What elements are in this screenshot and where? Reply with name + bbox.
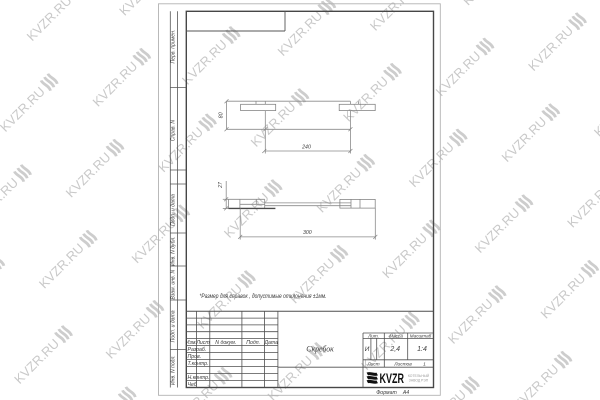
svg-text:Формат: Формат <box>376 390 397 396</box>
svg-text:ЗАВОД РЭП: ЗАВОД РЭП <box>409 379 429 383</box>
svg-text:KVZR.RU: KVZR.RU <box>511 361 562 400</box>
svg-text:Подп. и дата: Подп. и дата <box>170 310 176 342</box>
svg-text:Масса: Масса <box>389 334 403 339</box>
svg-text:Дата: Дата <box>263 340 278 346</box>
svg-text:KVZR.RU: KVZR.RU <box>274 8 325 59</box>
svg-text:KVZR.RU: KVZR.RU <box>116 0 167 18</box>
svg-text:KVZR.RU: KVZR.RU <box>36 240 87 291</box>
svg-text:Пров.: Пров. <box>188 354 202 360</box>
svg-text:KVZR.RU: KVZR.RU <box>103 311 154 362</box>
svg-text:Перв. примен.: Перв. примен. <box>170 30 176 64</box>
svg-text:KVZR.RU: KVZR.RU <box>591 89 600 140</box>
svg-text:Масштаб: Масштаб <box>410 334 432 339</box>
svg-text:KVZR.RU: KVZR.RU <box>525 23 576 74</box>
svg-text:KVZR.RU: KVZR.RU <box>0 175 21 226</box>
svg-text:Лист: Лист <box>366 362 379 368</box>
svg-text:KVZR.RU: KVZR.RU <box>498 114 549 165</box>
svg-text:Изм.: Изм. <box>186 340 197 346</box>
svg-text:Листов: Листов <box>393 362 412 368</box>
svg-text:KVZR.RU: KVZR.RU <box>340 74 391 125</box>
svg-text:80: 80 <box>218 112 224 118</box>
svg-text:А4: А4 <box>402 390 409 396</box>
svg-text:И: И <box>365 346 370 353</box>
svg-text:Инв. N дубл.: Инв. N дубл. <box>170 236 176 266</box>
svg-text:Инв. N подл.: Инв. N подл. <box>170 355 176 385</box>
svg-text:27: 27 <box>218 181 224 189</box>
svg-text:KVZR.RU: KVZR.RU <box>248 99 299 150</box>
svg-text:Подп. и дата: Подп. и дата <box>170 194 176 226</box>
svg-text:KVZR.RU: KVZR.RU <box>418 387 469 400</box>
svg-text:*Размер для справок , допустим: *Размер для справок , допустимые отклоне… <box>200 293 327 300</box>
svg-text:KVZR.RU: KVZR.RU <box>445 296 496 347</box>
svg-text:Лит.: Лит. <box>367 334 379 339</box>
svg-text:1:4: 1:4 <box>417 346 427 353</box>
svg-text:KVZR: KVZR <box>380 371 405 386</box>
svg-text:KVZR.RU: KVZR.RU <box>0 84 48 135</box>
svg-text:KVZR.RU: KVZR.RU <box>564 180 600 231</box>
svg-text:KVZR.RU: KVZR.RU <box>24 0 75 44</box>
svg-text:300: 300 <box>303 230 312 236</box>
svg-text:Подп.: Подп. <box>246 340 260 346</box>
svg-text:Н.контр.: Н.контр. <box>188 375 210 381</box>
svg-text:1: 1 <box>423 362 426 368</box>
svg-text:Взам. инв. N: Взам. инв. N <box>170 269 176 299</box>
svg-text:240: 240 <box>301 144 311 150</box>
svg-text:KVZR.RU: KVZR.RU <box>406 139 457 190</box>
svg-text:Т.контр.: Т.контр. <box>188 361 209 367</box>
svg-text:Лист: Лист <box>195 340 210 346</box>
svg-text:2,4: 2,4 <box>389 346 400 353</box>
svg-text:KVZR.RU: KVZR.RU <box>379 230 430 281</box>
svg-text:KVZR.RU: KVZR.RU <box>155 124 206 175</box>
svg-text:N докум.: N докум. <box>215 340 236 346</box>
svg-text:KVZR.RU: KVZR.RU <box>11 336 62 387</box>
svg-text:Чеб: Чеб <box>188 382 198 388</box>
svg-text:КОТЕЛЬНЫЙ: КОТЕЛЬНЫЙ <box>408 374 430 378</box>
svg-text:Разраб.: Разраб. <box>188 347 207 353</box>
svg-text:Скребок: Скребок <box>306 344 334 354</box>
svg-text:KVZR.RU: KVZR.RU <box>537 271 588 322</box>
svg-text:KVZR.RU: KVZR.RU <box>472 205 523 256</box>
svg-text:KVZR.RU: KVZR.RU <box>221 190 272 241</box>
svg-text:KVZR.RU: KVZR.RU <box>63 149 114 200</box>
svg-text:KVZR.RU: KVZR.RU <box>89 59 140 110</box>
svg-text:Справ. N: Справ. N <box>170 120 176 142</box>
svg-text:KVZR.RU: KVZR.RU <box>367 0 418 34</box>
svg-text:KVZR.RU: KVZR.RU <box>459 0 510 8</box>
svg-text:KVZR.RU: KVZR.RU <box>194 281 245 332</box>
